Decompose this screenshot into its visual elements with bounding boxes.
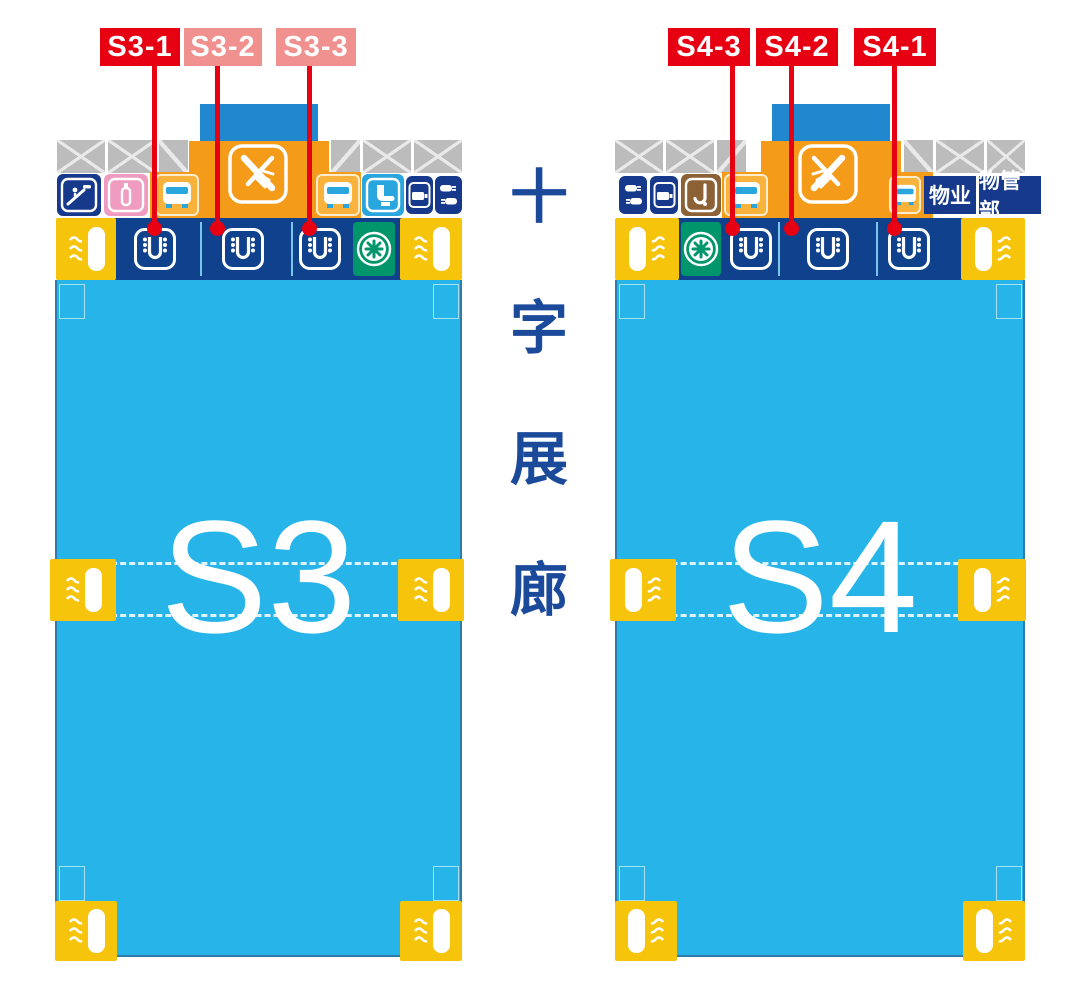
door-bar bbox=[628, 909, 645, 953]
pointer-dot bbox=[210, 221, 225, 236]
shuttle-bus-icon bbox=[155, 174, 199, 216]
ramp-block bbox=[904, 140, 933, 173]
door-bar bbox=[433, 227, 450, 271]
truss-stairs-block bbox=[615, 140, 663, 173]
truss-stairs-block bbox=[936, 140, 984, 173]
strip-divider bbox=[291, 222, 293, 276]
door-marking bbox=[996, 284, 1022, 319]
ramp-block bbox=[159, 140, 188, 173]
ventilation-fan-icon bbox=[353, 222, 395, 276]
pointer-dot bbox=[147, 221, 162, 236]
restaurant-utensils-icon bbox=[796, 142, 860, 206]
pointer-dot bbox=[302, 221, 317, 236]
charging-plugs-icon bbox=[435, 176, 462, 214]
air-outlet-block bbox=[56, 218, 116, 280]
door-bar bbox=[88, 227, 105, 271]
door-bar bbox=[976, 909, 993, 953]
pointer-line bbox=[730, 64, 735, 229]
shuttle-bus-icon bbox=[316, 174, 360, 216]
air-outlet-block bbox=[615, 901, 677, 961]
door-bar bbox=[625, 568, 642, 612]
door-bar bbox=[975, 227, 992, 271]
camera-icon bbox=[650, 176, 678, 214]
corridor-char: 十 bbox=[505, 150, 573, 234]
door-bar bbox=[974, 568, 991, 612]
property-management-label: 物管部 bbox=[979, 176, 1041, 214]
callout-s3-3: S3-3 bbox=[276, 28, 356, 66]
escalator-icon bbox=[57, 174, 101, 216]
air-outlet-block bbox=[961, 218, 1025, 280]
air-outlet-block bbox=[400, 218, 462, 280]
truss-stairs-block bbox=[363, 140, 411, 173]
air-outlet-waves-icon bbox=[995, 573, 1011, 607]
air-outlet-waves-icon bbox=[65, 573, 81, 607]
air-outlet-block bbox=[398, 559, 464, 621]
pointer-dot bbox=[887, 221, 902, 236]
pointer-dot bbox=[784, 221, 799, 236]
door-marking bbox=[433, 866, 459, 901]
strip-divider bbox=[876, 222, 878, 276]
air-outlet-waves-icon bbox=[649, 914, 665, 948]
door-bar bbox=[85, 568, 102, 612]
pointer-line bbox=[215, 64, 220, 229]
venue-map: S3-1 S3-2 S3-3 S4-3 S4-2 S4-1 十 字 展 廊 bbox=[0, 0, 1080, 991]
door-marking bbox=[619, 284, 645, 319]
callout-s4-3: S4-3 bbox=[668, 28, 750, 66]
door-marking bbox=[619, 866, 645, 901]
pointer-line bbox=[152, 64, 157, 229]
nursing-room-icon bbox=[104, 174, 148, 216]
corridor-char: 廊 bbox=[505, 543, 573, 627]
truss-stairs-block bbox=[666, 140, 714, 173]
gate-icon bbox=[220, 226, 266, 272]
charging-plugs-icon bbox=[619, 176, 647, 214]
air-outlet-waves-icon bbox=[68, 914, 84, 948]
truss-stairs-block bbox=[108, 140, 156, 173]
air-outlet-block bbox=[400, 901, 462, 961]
door-marking bbox=[59, 284, 85, 319]
truss-stairs-block bbox=[57, 140, 105, 173]
air-outlet-waves-icon bbox=[413, 232, 429, 266]
callout-s4-2: S4-2 bbox=[756, 28, 838, 66]
corridor-char: 字 bbox=[505, 281, 573, 365]
ventilation-fan-icon bbox=[681, 222, 721, 276]
corridor-char: 展 bbox=[505, 412, 573, 496]
air-outlet-waves-icon bbox=[413, 573, 429, 607]
air-outlet-block bbox=[610, 559, 676, 621]
air-outlet-waves-icon bbox=[646, 573, 662, 607]
air-outlet-block bbox=[615, 218, 679, 280]
property-office-label: 物业 bbox=[924, 176, 976, 214]
toilet-icon bbox=[362, 174, 404, 216]
air-outlet-block bbox=[958, 559, 1026, 621]
callout-s3-2: S3-2 bbox=[184, 28, 262, 66]
door-bar bbox=[629, 227, 646, 271]
callout-s4-1: S4-1 bbox=[854, 28, 936, 66]
pointer-line bbox=[307, 64, 312, 229]
air-outlet-waves-icon bbox=[413, 914, 429, 948]
callout-s3-1: S3-1 bbox=[100, 28, 180, 66]
air-outlet-block bbox=[963, 901, 1025, 961]
air-outlet-block bbox=[55, 901, 117, 961]
ramp-block bbox=[331, 140, 360, 173]
camera-icon bbox=[406, 176, 433, 214]
door-marking bbox=[59, 866, 85, 901]
restaurant-utensils-icon bbox=[226, 142, 290, 206]
door-bar bbox=[433, 568, 450, 612]
air-outlet-waves-icon bbox=[68, 232, 84, 266]
strip-divider bbox=[200, 222, 202, 276]
air-outlet-block bbox=[50, 559, 116, 621]
pointer-line bbox=[789, 64, 794, 229]
air-outlet-waves-icon bbox=[997, 914, 1013, 948]
door-marking bbox=[433, 284, 459, 319]
strip-divider bbox=[778, 222, 780, 276]
door-marking bbox=[996, 866, 1022, 901]
door-bar bbox=[88, 909, 105, 953]
pointer-line bbox=[892, 64, 897, 229]
air-outlet-waves-icon bbox=[996, 232, 1012, 266]
hook-icon bbox=[681, 174, 721, 216]
corridor-title: 十 字 展 廊 bbox=[505, 150, 573, 627]
truss-stairs-block bbox=[414, 140, 462, 173]
door-bar bbox=[433, 909, 450, 953]
air-outlet-waves-icon bbox=[650, 232, 666, 266]
gate-icon bbox=[805, 226, 851, 272]
pointer-dot bbox=[725, 221, 740, 236]
